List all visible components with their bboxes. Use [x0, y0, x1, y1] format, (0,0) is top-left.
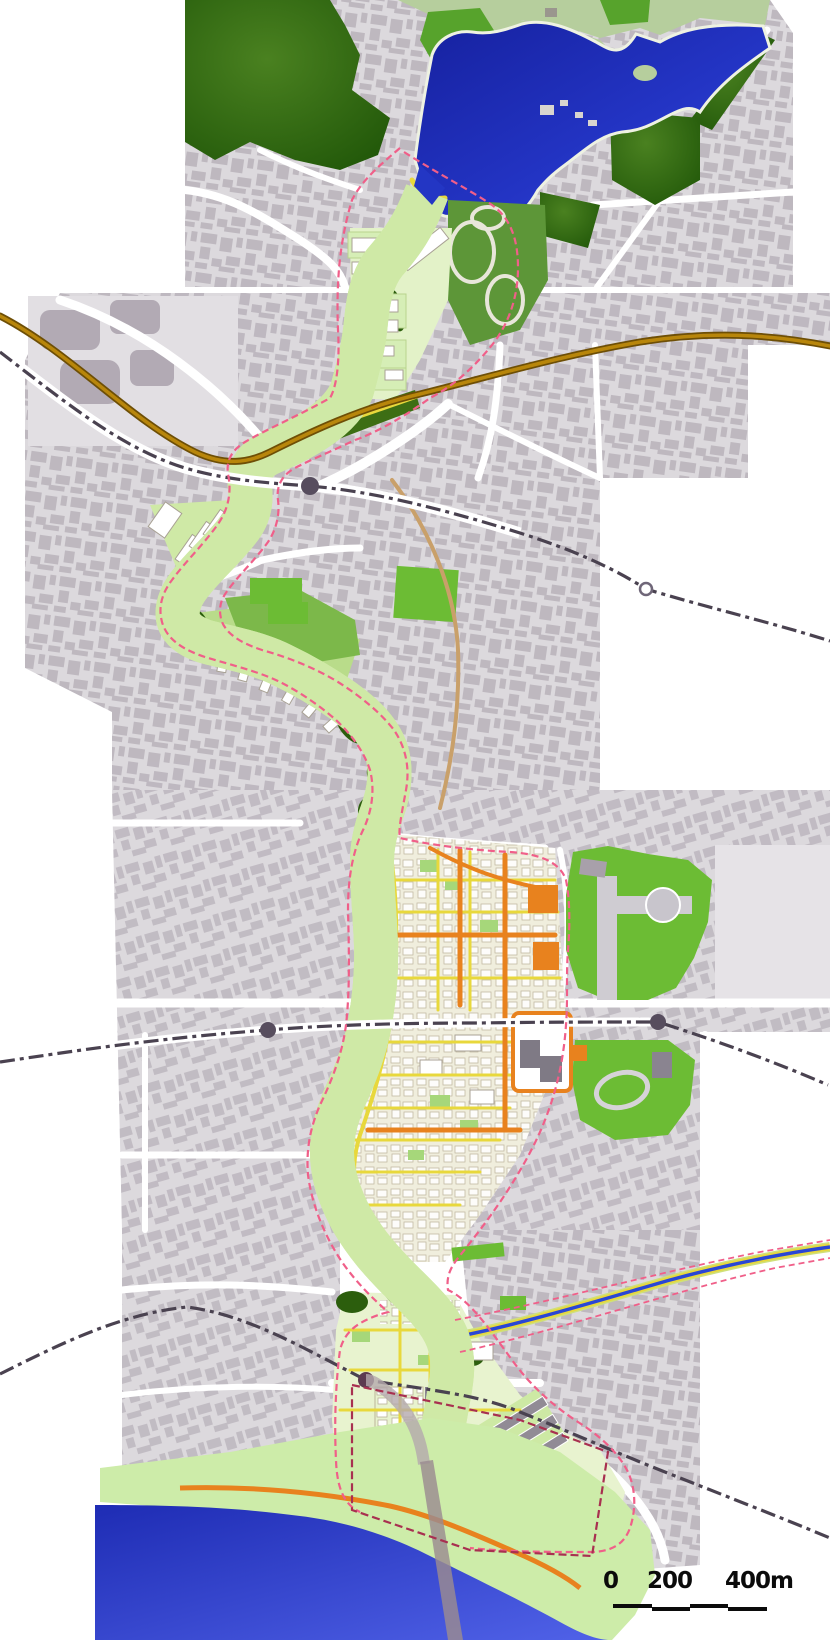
roundabout [646, 888, 680, 922]
scale-bar-rule [613, 1604, 767, 1613]
scale-label-400: 400m [725, 1568, 793, 1594]
scale-label-200: 200 [647, 1568, 692, 1594]
scale-label-0: 0 [603, 1568, 618, 1594]
masterplan-map: 0 200 400m [0, 0, 830, 1640]
station-marker [301, 477, 319, 495]
scale-bar: 0 200 400m [585, 1568, 800, 1618]
station-marker [260, 1022, 276, 1038]
station-marker-open [640, 583, 652, 595]
map-canvas [0, 0, 830, 1640]
industrial-zone [28, 296, 238, 446]
campus-plaza [715, 845, 830, 1000]
lake-island [633, 65, 657, 81]
station-marker [650, 1014, 666, 1030]
